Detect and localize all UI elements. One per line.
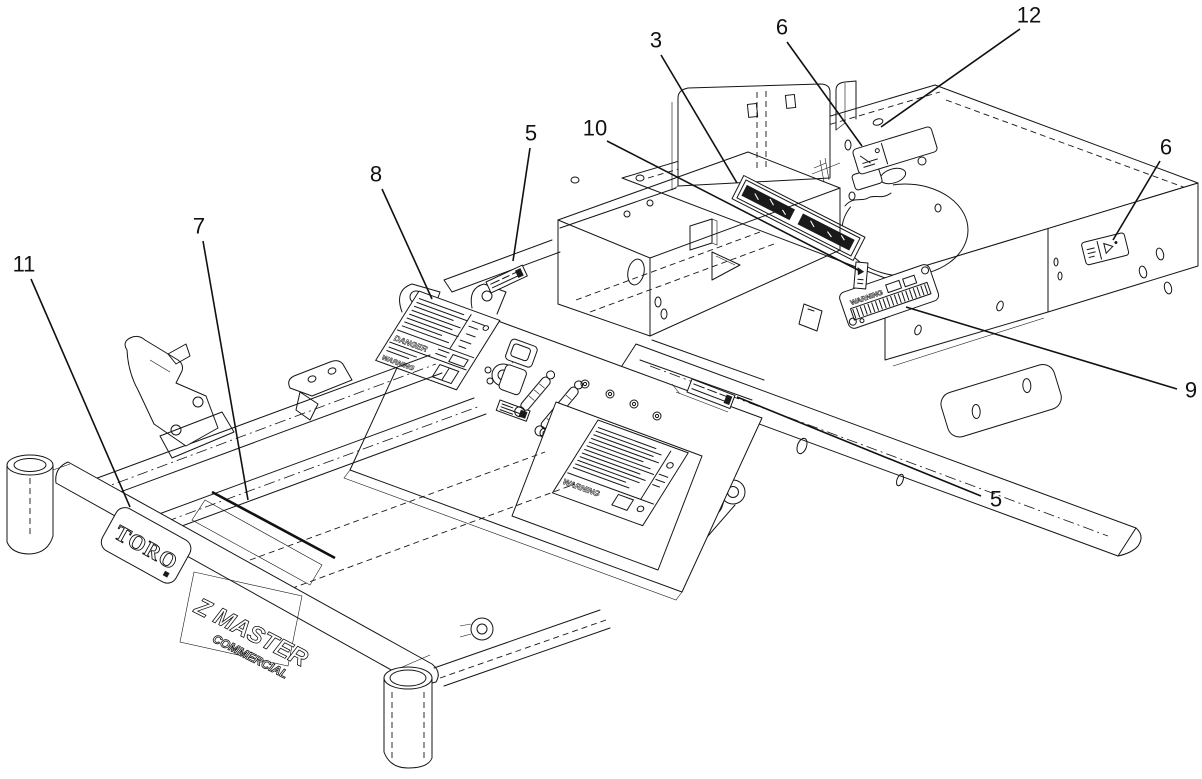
caster-arm-bracket	[125, 336, 234, 458]
leader-line-8	[382, 189, 432, 299]
callout-5: 5	[513, 121, 537, 262]
decal-10	[854, 262, 868, 289]
diagram-canvas: DANGER WARNING	[0, 0, 1202, 779]
callout-number-9: 9	[1185, 378, 1197, 403]
decal-5-left	[444, 240, 560, 293]
rear-upright-panel	[672, 81, 856, 190]
callout-number-3: 3	[650, 28, 662, 53]
callout-number-7: 7	[193, 214, 205, 239]
leader-line-7	[203, 241, 248, 500]
callout-number-5: 5	[525, 121, 537, 146]
caster-mount-plate	[938, 362, 1064, 440]
parts-diagram-page: DANGER WARNING	[0, 0, 1202, 779]
callout-7: 7	[193, 214, 248, 501]
callout-number-11: 11	[13, 252, 36, 277]
callout-number-12: 12	[1017, 3, 1041, 28]
leader-line-5	[513, 148, 530, 261]
callout-8: 8	[370, 162, 432, 300]
caster-socket-front	[384, 655, 432, 768]
callout-number-6: 6	[1160, 135, 1172, 160]
decal-7-strip	[212, 492, 335, 558]
callout-number-10: 10	[583, 116, 607, 141]
mounting-ears	[289, 361, 352, 420]
callout-number-8: 8	[370, 162, 382, 187]
clevis-pin	[460, 618, 493, 640]
callout-number-6: 6	[776, 15, 788, 40]
operator-console: DANGER WARNING	[344, 284, 762, 600]
callout-number-5: 5	[990, 487, 1002, 512]
